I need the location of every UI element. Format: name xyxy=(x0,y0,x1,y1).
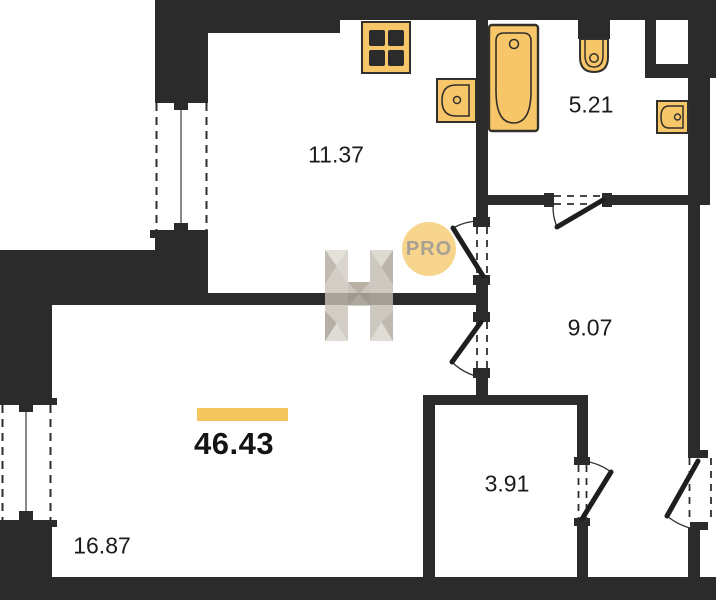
wall-right-mid xyxy=(688,205,700,457)
wall-divider-upper xyxy=(476,20,488,217)
room-label-hallway: 9.07 xyxy=(568,315,613,342)
wall-left-upper xyxy=(155,0,208,96)
window-sill xyxy=(0,520,57,527)
room-label-living-room: 16.87 xyxy=(73,533,131,560)
total-area-accent-bar xyxy=(197,408,288,421)
wall-right-lower xyxy=(688,528,700,577)
wall-storage-right-upper xyxy=(577,405,588,457)
wall-bathroom-bottom-right xyxy=(605,195,700,205)
total-area-label: 46.43 xyxy=(194,426,274,462)
wall-storage-top xyxy=(423,395,588,405)
wall-storage-left xyxy=(423,405,435,577)
floorplan-base-drawing xyxy=(0,0,716,600)
floorplan-canvas: PRO xyxy=(0,0,716,600)
wall-left-block xyxy=(0,250,208,305)
wall-right-upper xyxy=(688,78,710,205)
wall-bottom xyxy=(0,577,716,600)
fixture-sink-kitchen xyxy=(437,79,476,122)
wall-left-mid xyxy=(155,238,208,250)
window-upper-left xyxy=(157,100,207,233)
fixture-sink-bathroom xyxy=(657,101,688,133)
room-label-kitchen: 11.37 xyxy=(308,142,364,169)
wall-top xyxy=(155,0,716,20)
h-logo-watermark xyxy=(325,250,393,341)
wall-divider-mid xyxy=(476,285,488,312)
fixture-bathtub xyxy=(489,25,538,131)
room-label-storage: 3.91 xyxy=(485,471,530,498)
fixture-stove xyxy=(362,22,410,73)
room-label-bathroom: 5.21 xyxy=(569,92,614,119)
wall-left-lower xyxy=(0,305,52,398)
fixture-toilet xyxy=(578,20,610,72)
pro-watermark-badge: PRO xyxy=(402,222,456,276)
window-lower-left xyxy=(3,402,51,521)
wall-bathroom-bottom-left xyxy=(488,195,552,205)
pro-badge-label: PRO xyxy=(406,238,452,261)
wall-top-thick xyxy=(208,20,340,33)
wall-storage-right-lower xyxy=(577,526,588,577)
shaft-opening xyxy=(656,20,688,64)
